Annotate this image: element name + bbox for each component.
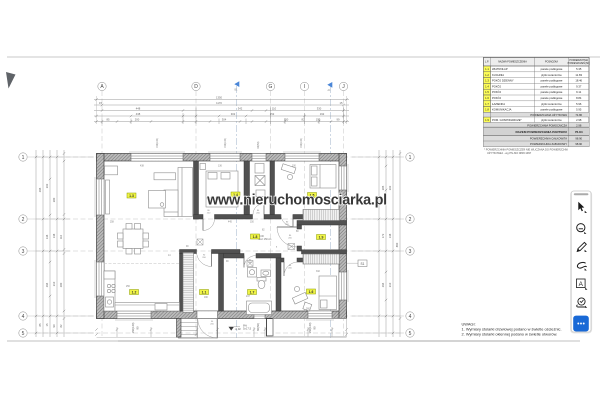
svg-text:4: 4 — [409, 314, 412, 320]
svg-text:panele podłogowe: panele podłogowe — [541, 67, 563, 71]
svg-text:POWIERZCHNIA POMOCNICZA: POWIERZCHNIA POMOCNICZA — [527, 123, 567, 127]
svg-text:860: 860 — [395, 242, 399, 247]
svg-text:5.95: 5.95 — [576, 108, 582, 112]
svg-text:110: 110 — [59, 234, 63, 239]
svg-text:310: 310 — [52, 281, 56, 286]
svg-text:2: 2 — [409, 217, 412, 223]
svg-text:5.35: 5.35 — [576, 67, 582, 71]
svg-text:WIATROŁAP: WIATROŁAP — [492, 67, 508, 71]
svg-text:1.1: 1.1 — [202, 290, 207, 294]
svg-text:148: 148 — [388, 233, 392, 238]
svg-text:150(140): 150(140) — [308, 323, 312, 334]
svg-text:płytki ceramiczne: płytki ceramiczne — [541, 73, 562, 77]
svg-text:1: 1 — [409, 155, 412, 161]
svg-text:panele podłogowe: panele podłogowe — [541, 90, 563, 94]
svg-text:POM. GOSPODARCZE*: POM. GOSPODARCZE* — [492, 118, 522, 122]
svg-text:82: 82 — [59, 324, 63, 327]
svg-text:5.96: 5.96 — [576, 102, 582, 106]
svg-text:18.46: 18.46 — [575, 79, 582, 83]
svg-text:RAZEM POWIERZCHNIA PARTERU: RAZEM POWIERZCHNIA PARTERU — [515, 130, 567, 134]
svg-text:200: 200 — [135, 118, 140, 122]
svg-text:1.2: 1.2 — [485, 73, 489, 77]
svg-text:ŁAZIENKA: ŁAZIENKA — [492, 102, 505, 106]
svg-text:3: 3 — [409, 249, 412, 255]
svg-text:60(50): 60(50) — [257, 141, 260, 148]
svg-text:panele podłogowe: panele podłogowe — [541, 96, 563, 100]
svg-text:98.90: 98.90 — [575, 137, 582, 141]
svg-text:304: 304 — [222, 118, 227, 122]
svg-text:1.4: 1.4 — [485, 84, 489, 88]
svg-text:1.6: 1.6 — [309, 290, 314, 294]
svg-text:2. Wymiary stolarki okiennej p: 2. Wymiary stolarki okiennej podano w św… — [462, 332, 558, 337]
svg-text:5: 5 — [409, 331, 412, 337]
svg-text:* POWIERZCHNIA POMIESZCZEŃ NIE: * POWIERZCHNIA POMIESZCZEŃ NIE WLICZANA … — [484, 148, 568, 152]
svg-text:8.84: 8.84 — [576, 96, 582, 100]
svg-text:NAZWA POMIESZCZENIA: NAZWA POMIESZCZENIA — [498, 61, 527, 64]
svg-text:342: 342 — [238, 107, 243, 111]
svg-text:panele podłogowe: panele podłogowe — [541, 79, 563, 83]
svg-text:136: 136 — [45, 234, 49, 239]
svg-text:1.7: 1.7 — [485, 102, 489, 106]
svg-text:302: 302 — [388, 185, 392, 190]
svg-text:150: 150 — [316, 118, 321, 122]
svg-text:90: 90 — [313, 326, 317, 329]
svg-text:1350: 1350 — [216, 96, 222, 100]
svg-text:302: 302 — [45, 183, 49, 188]
svg-text:1170: 1170 — [216, 101, 222, 105]
svg-text:82: 82 — [302, 118, 305, 122]
svg-text:85: 85 — [107, 118, 110, 122]
svg-text:90: 90 — [136, 326, 140, 329]
svg-text:150(140): 150(140) — [131, 323, 135, 334]
svg-text:192: 192 — [320, 112, 325, 116]
svg-text:Niw= 150 cm: Niw= 150 cm — [258, 239, 271, 241]
svg-text:1.7: 1.7 — [250, 290, 255, 294]
svg-text:A: A — [579, 281, 584, 288]
svg-text:www.nieruchomosciarka.pl: www.nieruchomosciarka.pl — [206, 193, 387, 209]
svg-text:2.98: 2.98 — [576, 118, 582, 122]
svg-text:173: 173 — [381, 233, 385, 238]
svg-text:KUCHNIA: KUCHNIA — [492, 73, 504, 77]
svg-text:310: 310 — [388, 282, 392, 287]
svg-text:POWIERZCHNIA CAŁKOWITA: POWIERZCHNIA CAŁKOWITA — [530, 137, 567, 141]
svg-text:150(140): 150(140) — [156, 138, 159, 148]
svg-text:295: 295 — [38, 187, 42, 192]
svg-text:1.9: 1.9 — [319, 235, 324, 239]
svg-text:302: 302 — [231, 112, 236, 116]
svg-text:S1: S1 — [361, 262, 365, 266]
svg-text:448: 448 — [136, 107, 141, 111]
svg-text:1.1: 1.1 — [485, 67, 489, 71]
svg-text:11.83: 11.83 — [575, 73, 582, 77]
svg-text:98.90: 98.90 — [575, 142, 582, 146]
svg-text:15: 15 — [340, 101, 343, 105]
svg-text:-0,02: -0,02 — [235, 327, 241, 331]
svg-text:152: 152 — [270, 112, 275, 116]
svg-text:1.5: 1.5 — [485, 90, 489, 94]
svg-text:294: 294 — [381, 282, 385, 287]
svg-text:POWIERZCHNIA ZABUDOWY: POWIERZCHNIA ZABUDOWY — [530, 142, 567, 146]
svg-text:150(140): 150(140) — [224, 138, 227, 148]
svg-text:330: 330 — [317, 107, 322, 111]
svg-text:1.2: 1.2 — [132, 290, 137, 294]
svg-text:380: 380 — [52, 197, 56, 202]
svg-text:85: 85 — [38, 323, 42, 326]
svg-text:panele podłogowe: panele podłogowe — [541, 108, 563, 112]
svg-text:2: 2 — [22, 217, 25, 223]
svg-text:294: 294 — [45, 282, 49, 287]
svg-text:1.6: 1.6 — [485, 96, 489, 100]
svg-text:I: I — [304, 84, 305, 90]
svg-text:POSADZKA: POSADZKA — [545, 61, 558, 64]
svg-text:D: D — [194, 84, 198, 90]
svg-text:76.84: 76.84 — [575, 130, 583, 134]
svg-text:5: 5 — [22, 331, 25, 337]
svg-text:74.86: 74.86 — [575, 113, 582, 117]
svg-text:2.98: 2.98 — [576, 123, 582, 127]
svg-text:4: 4 — [22, 314, 25, 320]
svg-text:148: 148 — [52, 233, 56, 238]
svg-text:9.37: 9.37 — [576, 84, 582, 88]
svg-text:9.11: 9.11 — [576, 90, 582, 94]
svg-text:L.P.: L.P. — [485, 61, 489, 64]
svg-text:G: G — [269, 84, 273, 90]
svg-text:5x17,5: 5x17,5 — [243, 327, 252, 331]
svg-text:60(50): 60(50) — [256, 323, 260, 331]
svg-text:płytki ceramiczne: płytki ceramiczne — [541, 118, 562, 122]
svg-text:1.8: 1.8 — [485, 108, 489, 112]
svg-text:438: 438 — [136, 112, 141, 116]
svg-text:15: 15 — [45, 323, 49, 326]
svg-text:1.9: 1.9 — [485, 118, 489, 122]
svg-text:1.8: 1.8 — [253, 235, 258, 239]
svg-text:1: 1 — [22, 155, 25, 161]
svg-text:90: 90 — [52, 324, 56, 327]
svg-text:KOMUNIKACJA: KOMUNIKACJA — [492, 108, 512, 112]
svg-text:panele podłogowe: panele podłogowe — [541, 84, 563, 88]
svg-text:POMIESZCZEŃ [M²]: POMIESZCZEŃ [M²] — [568, 62, 590, 65]
svg-text:1.3: 1.3 — [129, 194, 134, 198]
svg-text:płytki ceramiczne: płytki ceramiczne — [541, 102, 562, 106]
svg-text:99: 99 — [337, 118, 340, 122]
svg-text:150: 150 — [284, 118, 289, 122]
svg-text:3: 3 — [22, 249, 25, 255]
svg-text:1.3: 1.3 — [485, 79, 489, 83]
svg-text:150(140): 150(140) — [300, 138, 303, 148]
svg-text:385: 385 — [381, 185, 385, 190]
svg-text:110: 110 — [272, 107, 277, 111]
svg-text:15: 15 — [99, 101, 102, 105]
svg-text:280: 280 — [59, 282, 63, 287]
